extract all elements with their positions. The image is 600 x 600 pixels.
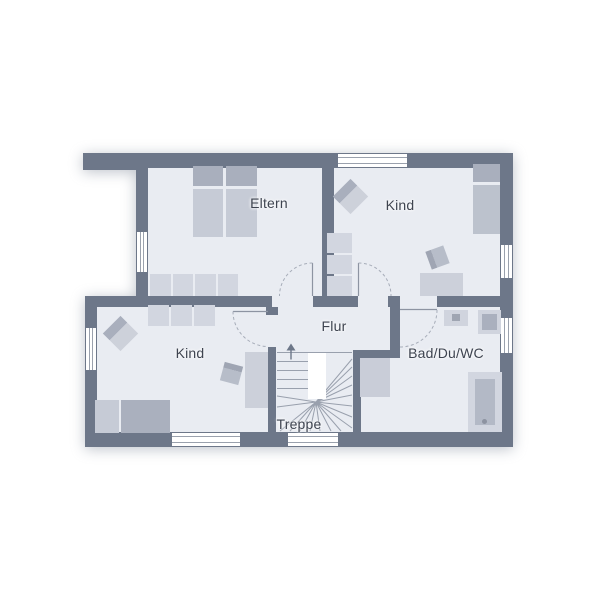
- single-bed: [473, 164, 500, 234]
- wardrobe: [327, 233, 352, 296]
- sideboard: [148, 305, 215, 326]
- bed-pillow: [193, 166, 223, 186]
- room-label-kind-bottom: Kind: [160, 345, 220, 361]
- bed-mattress: [121, 400, 170, 433]
- sideboard: [150, 274, 238, 296]
- bed-pillow: [95, 400, 119, 433]
- wall-divider-d: [437, 296, 500, 307]
- wall-top-left-stub: [83, 153, 142, 170]
- window-top: [338, 154, 407, 167]
- shower-drain: [482, 419, 487, 424]
- desk: [420, 273, 463, 296]
- window-kind-top-right: [501, 245, 512, 278]
- bed-mattress: [473, 185, 500, 234]
- desk: [245, 352, 268, 408]
- wall-jamb-tab: [266, 307, 278, 315]
- window-kind-bottom-left: [86, 328, 96, 370]
- bed-pillow: [473, 164, 500, 182]
- room-label-kind-top: Kind: [370, 197, 430, 213]
- wall-divider-center: [313, 296, 358, 307]
- window-bottom-2: [288, 433, 338, 446]
- single-bed: [95, 400, 170, 433]
- room-label-eltern: Eltern: [234, 195, 304, 211]
- sink-basin: [452, 314, 460, 321]
- toilet-bowl: [482, 314, 497, 330]
- window-eltern-left: [137, 232, 147, 272]
- wall-divider-c: [388, 296, 400, 307]
- room-label-bad: Bad/Du/WC: [396, 345, 496, 361]
- window-bottom-1: [172, 433, 240, 446]
- room-label-treppe: Treppe: [269, 416, 329, 432]
- bed-pillow: [226, 166, 257, 186]
- toilet: [478, 310, 501, 334]
- floor-plan: Eltern Kind Kind Flur Treppe Bad/Du/WC: [0, 0, 600, 600]
- bed-mattress: [193, 189, 223, 237]
- room-label-flur: Flur: [304, 318, 364, 334]
- sink: [444, 310, 468, 326]
- window-bad-right: [501, 318, 512, 353]
- bath-cabinet: [360, 358, 390, 397]
- shower: [468, 372, 502, 432]
